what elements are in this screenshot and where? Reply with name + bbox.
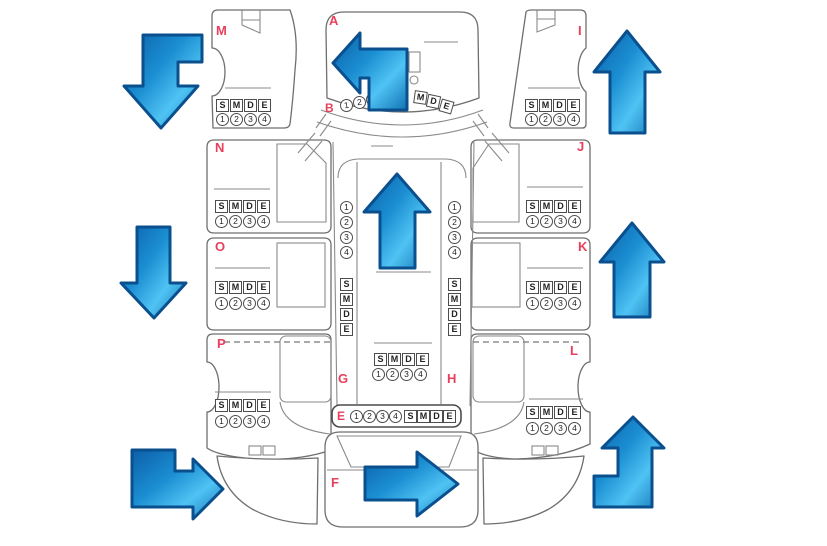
vehicle-inspection-diagram: A M I B N J O K P L G H E F SMDE 1234 SM…	[0, 0, 827, 546]
arrow-mid-right-icon	[600, 223, 664, 317]
arrow-front-left-icon	[124, 35, 202, 128]
arrow-hood-icon	[333, 33, 407, 110]
arrow-tailgate-icon	[365, 452, 458, 516]
arrow-front-right-icon	[594, 31, 660, 133]
fold-direction-arrows	[0, 0, 827, 546]
arrow-rear-right-icon	[594, 417, 664, 507]
arrow-mid-left-icon	[121, 227, 186, 318]
arrow-roof-icon	[364, 174, 430, 268]
arrow-rear-left-icon	[132, 450, 223, 519]
